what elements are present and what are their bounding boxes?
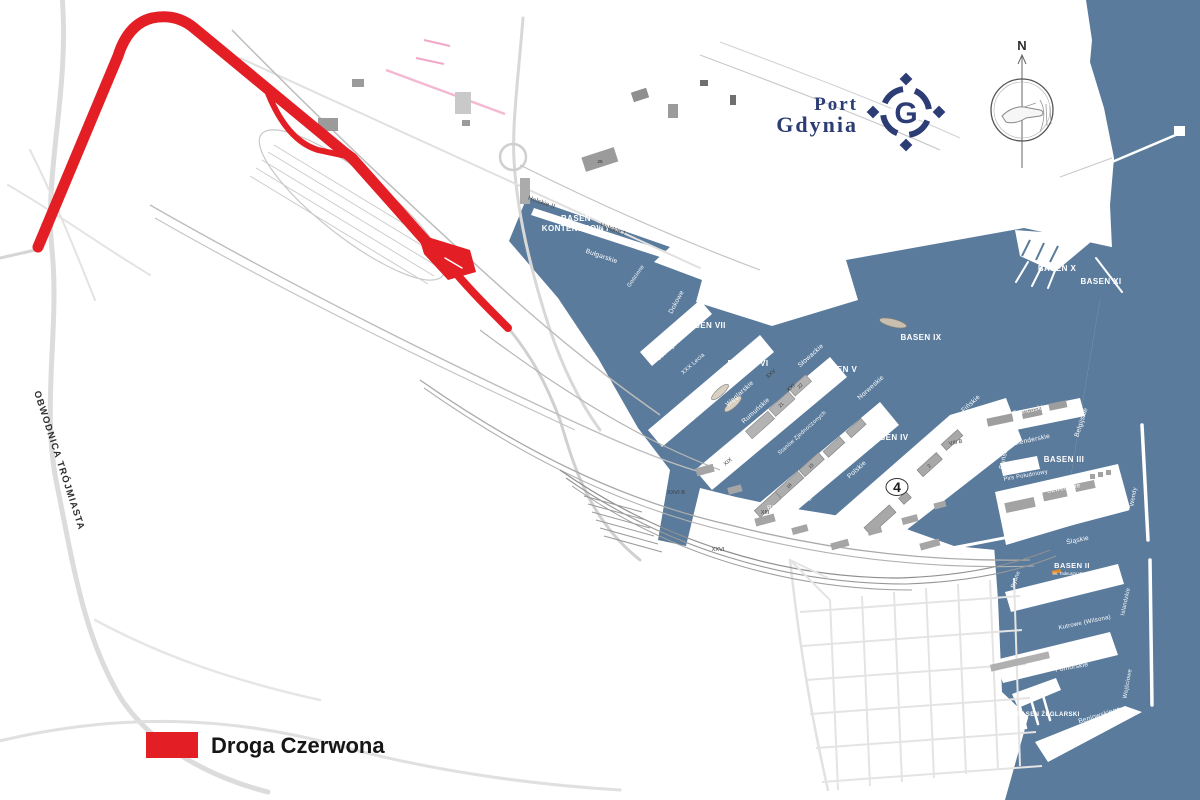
label-num-25: 25 (597, 159, 603, 164)
label-basen-ix: BASEN IX (901, 333, 942, 342)
label-basen-xi: BASEN XI (1081, 277, 1122, 286)
label-basen-ii: BASEN II (1054, 561, 1090, 570)
pier-4-number: 4 (893, 479, 901, 495)
road-sw-2 (95, 620, 320, 700)
logo-mark-icon: G (867, 73, 946, 152)
label-basen-zeglarski: BASEN ŻEGLARSKI (1016, 711, 1079, 718)
logo-letter-g: G (894, 97, 917, 130)
rail-yard-loop (242, 109, 463, 301)
red-road-junction (418, 234, 476, 280)
pink-rail-marks (386, 40, 505, 114)
logo-line2: Gdynia (776, 112, 858, 137)
label-basen-viii: BASEN VIII (745, 287, 791, 296)
legend-label: Droga Czerwona (211, 733, 385, 758)
label-basen-vi: BASEN VI (728, 359, 769, 368)
compass-north-label: N (1017, 38, 1026, 53)
label-obwodnica: OBWODNICA TRÓJMIASTA (31, 389, 88, 532)
label-pier-xxvi-b: XXVI B (667, 490, 685, 496)
red-road-tail (455, 272, 508, 328)
north-pier-head (1174, 126, 1185, 136)
port-gdynia-map: BASEN KONTENEROWY BASEN VIII BASEN VII B… (0, 0, 1200, 800)
compass-hand-icon (1002, 107, 1043, 123)
label-basen-vii: BASEN VII (682, 321, 726, 330)
label-basen-x: BASEN X (1038, 264, 1077, 273)
label-basen-v: BASEN V (819, 365, 858, 374)
road-city-edge (790, 560, 828, 790)
label-basen-kontenerowy-1: BASEN (561, 214, 591, 223)
legend: Droga Czerwona (146, 732, 385, 758)
obwodnica-road (50, 0, 268, 792)
port-gdynia-logo: Port Gdynia G (776, 73, 945, 152)
pier-4-marker: 4 (886, 479, 908, 496)
label-pier-xxvi: XXVI (712, 547, 725, 553)
breakwater-east-2 (1150, 560, 1152, 705)
red-road-main (38, 17, 432, 248)
label-basen-ii-sub: im. Tadeusza Wendy (1053, 571, 1093, 576)
compass-rose: N (991, 38, 1053, 168)
legend-swatch (146, 732, 198, 758)
label-basen-i: BASEN I (1069, 641, 1102, 650)
label-basen-iv: BASEN IV (868, 433, 909, 442)
label-pier-xiii: XIII (761, 510, 770, 516)
road-diagonal-upper (240, 58, 700, 268)
label-basen-iii: BASEN III (1044, 455, 1085, 464)
label-basen-i-sub: Prezydenta (1075, 651, 1097, 656)
road-nw-2 (30, 150, 95, 300)
